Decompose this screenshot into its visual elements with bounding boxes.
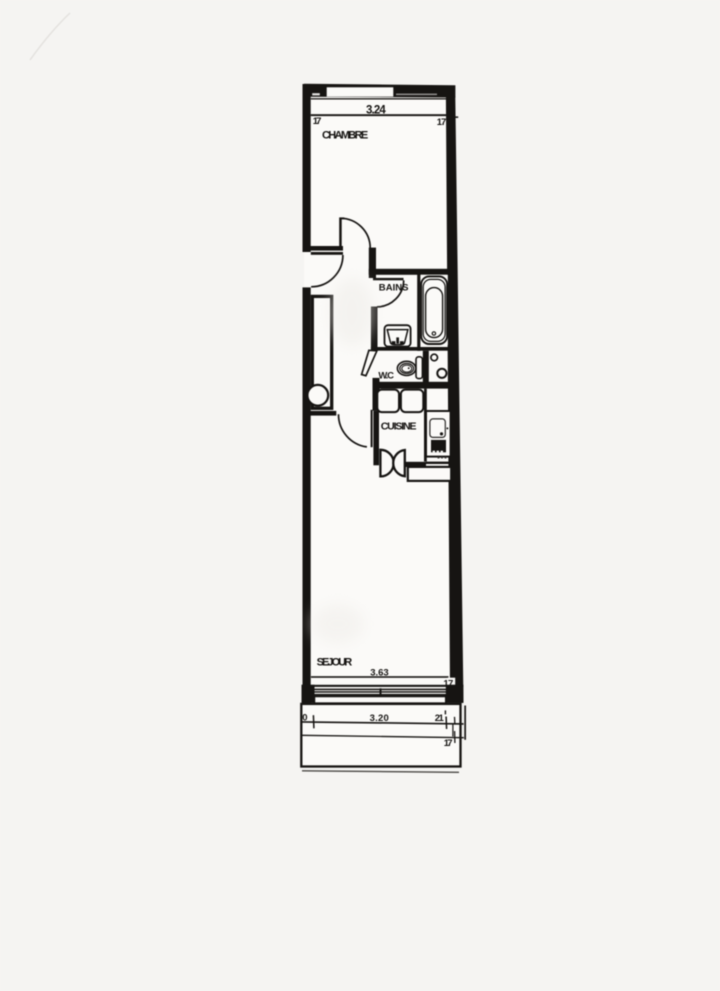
svg-text:SEJOUR: SEJOUR <box>317 657 353 669</box>
svg-text:CHAMBRE: CHAMBRE <box>322 129 368 141</box>
svg-text:21: 21 <box>435 713 445 724</box>
svg-text:CUISINE: CUISINE <box>381 420 417 432</box>
svg-text:W.C: W.C <box>378 370 394 381</box>
svg-text:3.24: 3.24 <box>366 104 386 116</box>
svg-text:17: 17 <box>313 116 322 127</box>
svg-text:17: 17 <box>444 738 453 749</box>
svg-text:BAINS: BAINS <box>379 283 409 294</box>
svg-text:0: 0 <box>302 712 307 723</box>
svg-text:3.20: 3.20 <box>370 713 389 724</box>
svg-text:17: 17 <box>437 117 447 128</box>
